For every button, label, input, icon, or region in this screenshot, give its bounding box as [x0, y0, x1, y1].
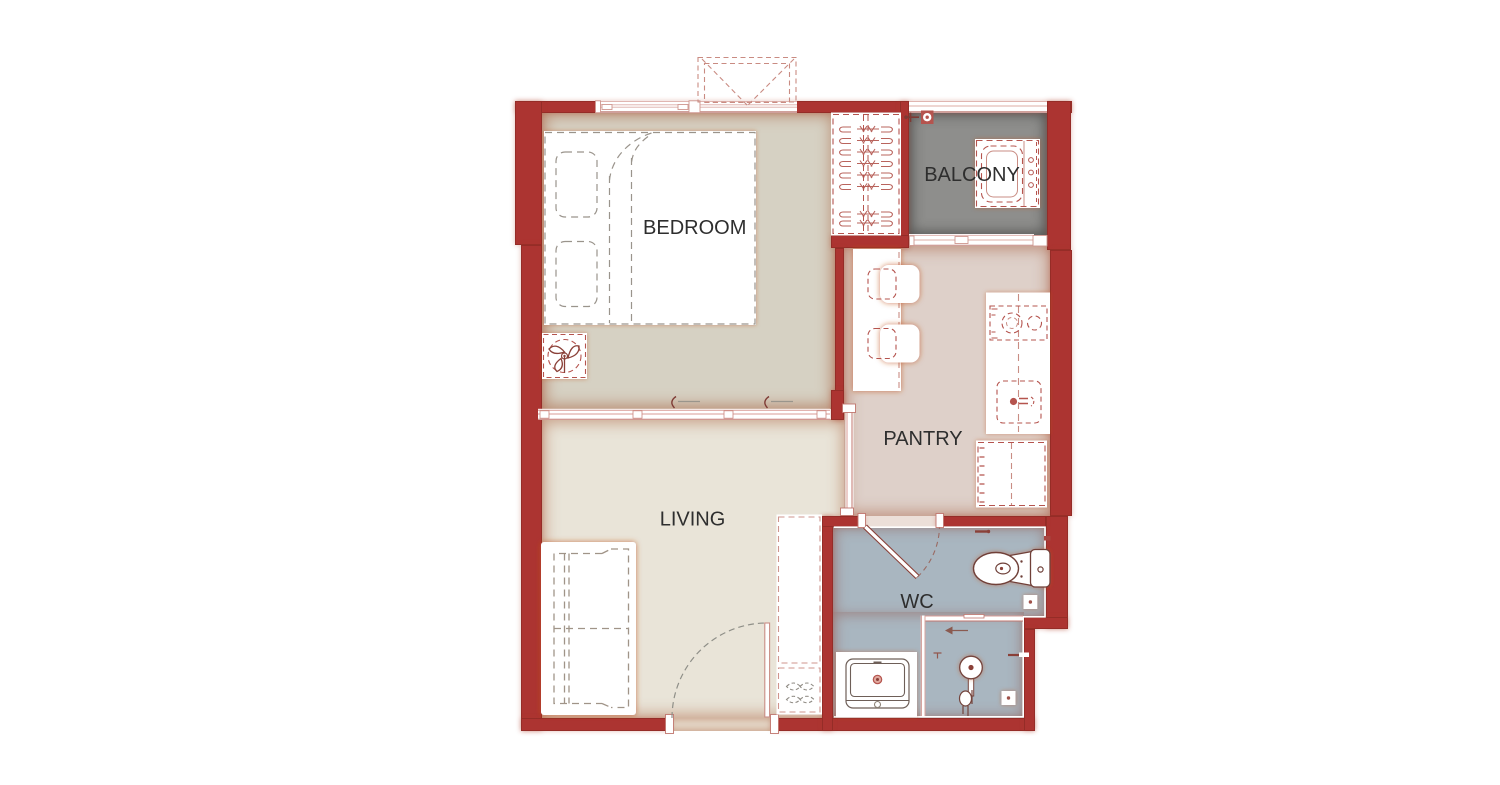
svg-text:LIVING: LIVING: [660, 509, 726, 531]
svg-text:BEDROOM: BEDROOM: [643, 217, 746, 239]
svg-text:PANTRY: PANTRY: [883, 428, 962, 450]
svg-text:BALCONY: BALCONY: [924, 164, 1020, 186]
svg-text:WC: WC: [900, 591, 933, 613]
